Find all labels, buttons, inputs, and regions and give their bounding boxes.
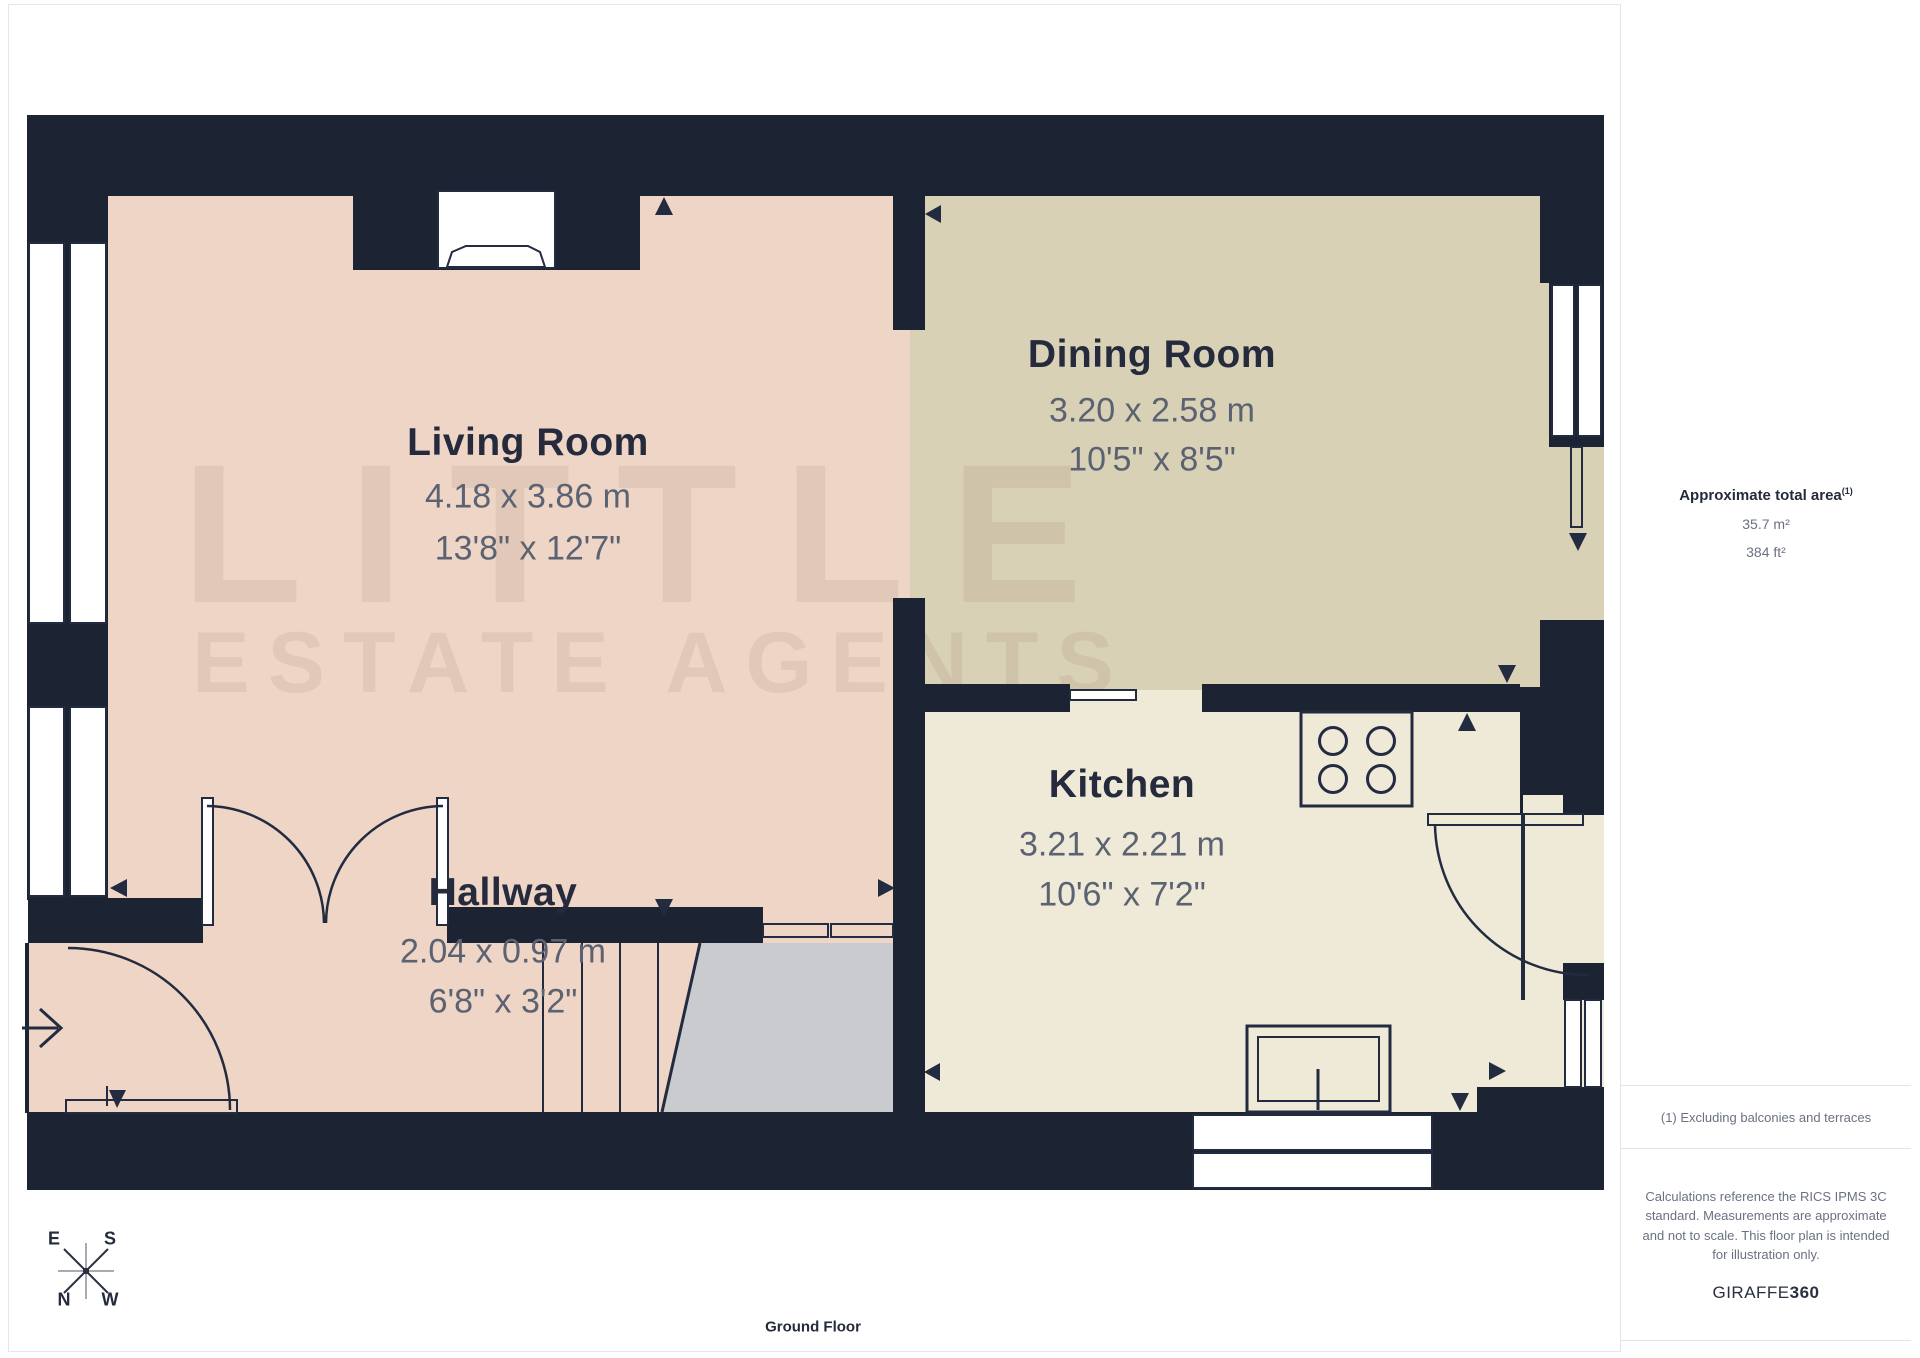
kitchen-name: Kitchen xyxy=(1049,763,1196,807)
door-leaf xyxy=(1070,690,1136,700)
disclaimer-text: Calculations reference the RICS IPMS 3C … xyxy=(1640,1187,1892,1265)
floorplan-page: LITTLE ESTATE AGENTS xyxy=(0,0,1920,1358)
living-room-imperial: 13'8" x 12'7" xyxy=(435,530,621,569)
wall-kitchen-right-block xyxy=(1563,963,1604,1000)
radiator-icon xyxy=(1571,447,1582,527)
kitchen-floor xyxy=(925,690,1604,1112)
stove-icon xyxy=(1301,712,1412,806)
wall-hall-divider-left xyxy=(28,898,203,943)
window-icon xyxy=(1578,285,1601,436)
total-area-title: Approximate total area(1) xyxy=(1621,486,1911,504)
wall-top xyxy=(27,115,1604,196)
window-icon xyxy=(1585,1000,1601,1087)
window-icon xyxy=(29,707,64,896)
info-sidebar: Approximate total area(1) 35.7 m² 384 ft… xyxy=(1620,4,1911,1352)
window-icon xyxy=(1565,1000,1581,1087)
compass-south-label: S xyxy=(104,1229,116,1250)
front-door-threshold xyxy=(66,1100,237,1113)
total-area-m2: 35.7 m² xyxy=(1621,516,1911,532)
hallway-name: Hallway xyxy=(429,871,578,915)
wall-living-dining-stub-bottom xyxy=(893,598,925,1112)
compass-north-label: N xyxy=(58,1290,71,1311)
stairs-upper-flight xyxy=(662,943,893,1112)
compass-east-label: E xyxy=(48,1229,60,1250)
wall-dining-kitchen-2 xyxy=(1202,684,1520,712)
stove-outline xyxy=(1301,712,1412,806)
kitchen-metric: 3.21 x 2.21 m xyxy=(1019,826,1225,865)
kitchen-imperial: 10'6" x 7'2" xyxy=(1038,876,1206,915)
window-icon xyxy=(70,707,106,896)
watermark-line1: LITTLE xyxy=(182,423,1129,644)
total-area-block: Approximate total area(1) 35.7 m² 384 ft… xyxy=(1621,486,1911,560)
door-leaf xyxy=(1521,814,1525,1000)
disclaimer-box: Calculations reference the RICS IPMS 3C … xyxy=(1621,1148,1911,1341)
door-leaf xyxy=(202,798,213,925)
living-room-name: Living Room xyxy=(407,421,649,465)
brand-name: GIRAFFE xyxy=(1712,1283,1789,1302)
footnote-box: (1) Excluding balconies and terraces xyxy=(1621,1085,1911,1148)
brand-suffix: 360 xyxy=(1790,1283,1820,1302)
window-icon xyxy=(1193,1115,1432,1150)
wall-living-dining-stub-top xyxy=(893,196,925,330)
wall-left-mid xyxy=(27,625,108,705)
dining-room-metric: 3.20 x 2.58 m xyxy=(1049,392,1255,431)
hallway-imperial: 6'8" x 3'2" xyxy=(429,983,578,1022)
compass-west-label: W xyxy=(102,1290,119,1311)
total-area-title-text: Approximate total area xyxy=(1679,487,1842,504)
window-icon xyxy=(70,243,106,623)
dining-room-imperial: 10'5" x 8'5" xyxy=(1068,441,1236,480)
hallway-floor xyxy=(28,943,710,1112)
wall-dining-kitchen-1 xyxy=(925,684,1070,712)
fireplace-icon xyxy=(438,191,555,268)
kitchen-door-frame xyxy=(1428,814,1583,825)
footnote-text: (1) Excluding balconies and terraces xyxy=(1647,1110,1885,1125)
window-sill xyxy=(1549,438,1604,447)
window-icon xyxy=(1193,1153,1432,1188)
window-icon xyxy=(1552,285,1574,436)
window-icon xyxy=(29,243,64,623)
floor-title: Ground Floor xyxy=(765,1319,861,1336)
watermark: LITTLE ESTATE AGENTS xyxy=(182,423,1132,711)
wall-left-top xyxy=(27,196,108,241)
compass-center xyxy=(83,1268,89,1274)
wall-notch xyxy=(1523,795,1563,815)
dining-room-name: Dining Room xyxy=(1028,333,1276,377)
footnote-marker: (1) xyxy=(1842,486,1853,496)
total-area-ft2: 384 ft² xyxy=(1621,544,1911,560)
fireplace-hearth xyxy=(447,246,545,267)
wall-dining-right-mid xyxy=(1540,620,1604,690)
living-room-metric: 4.18 x 3.86 m xyxy=(425,478,631,517)
wall-bottom-right-corner xyxy=(1477,1087,1604,1190)
wall-dining-right-top xyxy=(1540,196,1604,283)
giraffe360-logo: GIRAFFE360 xyxy=(1712,1283,1819,1303)
hallway-metric: 2.04 x 0.97 m xyxy=(400,933,606,972)
